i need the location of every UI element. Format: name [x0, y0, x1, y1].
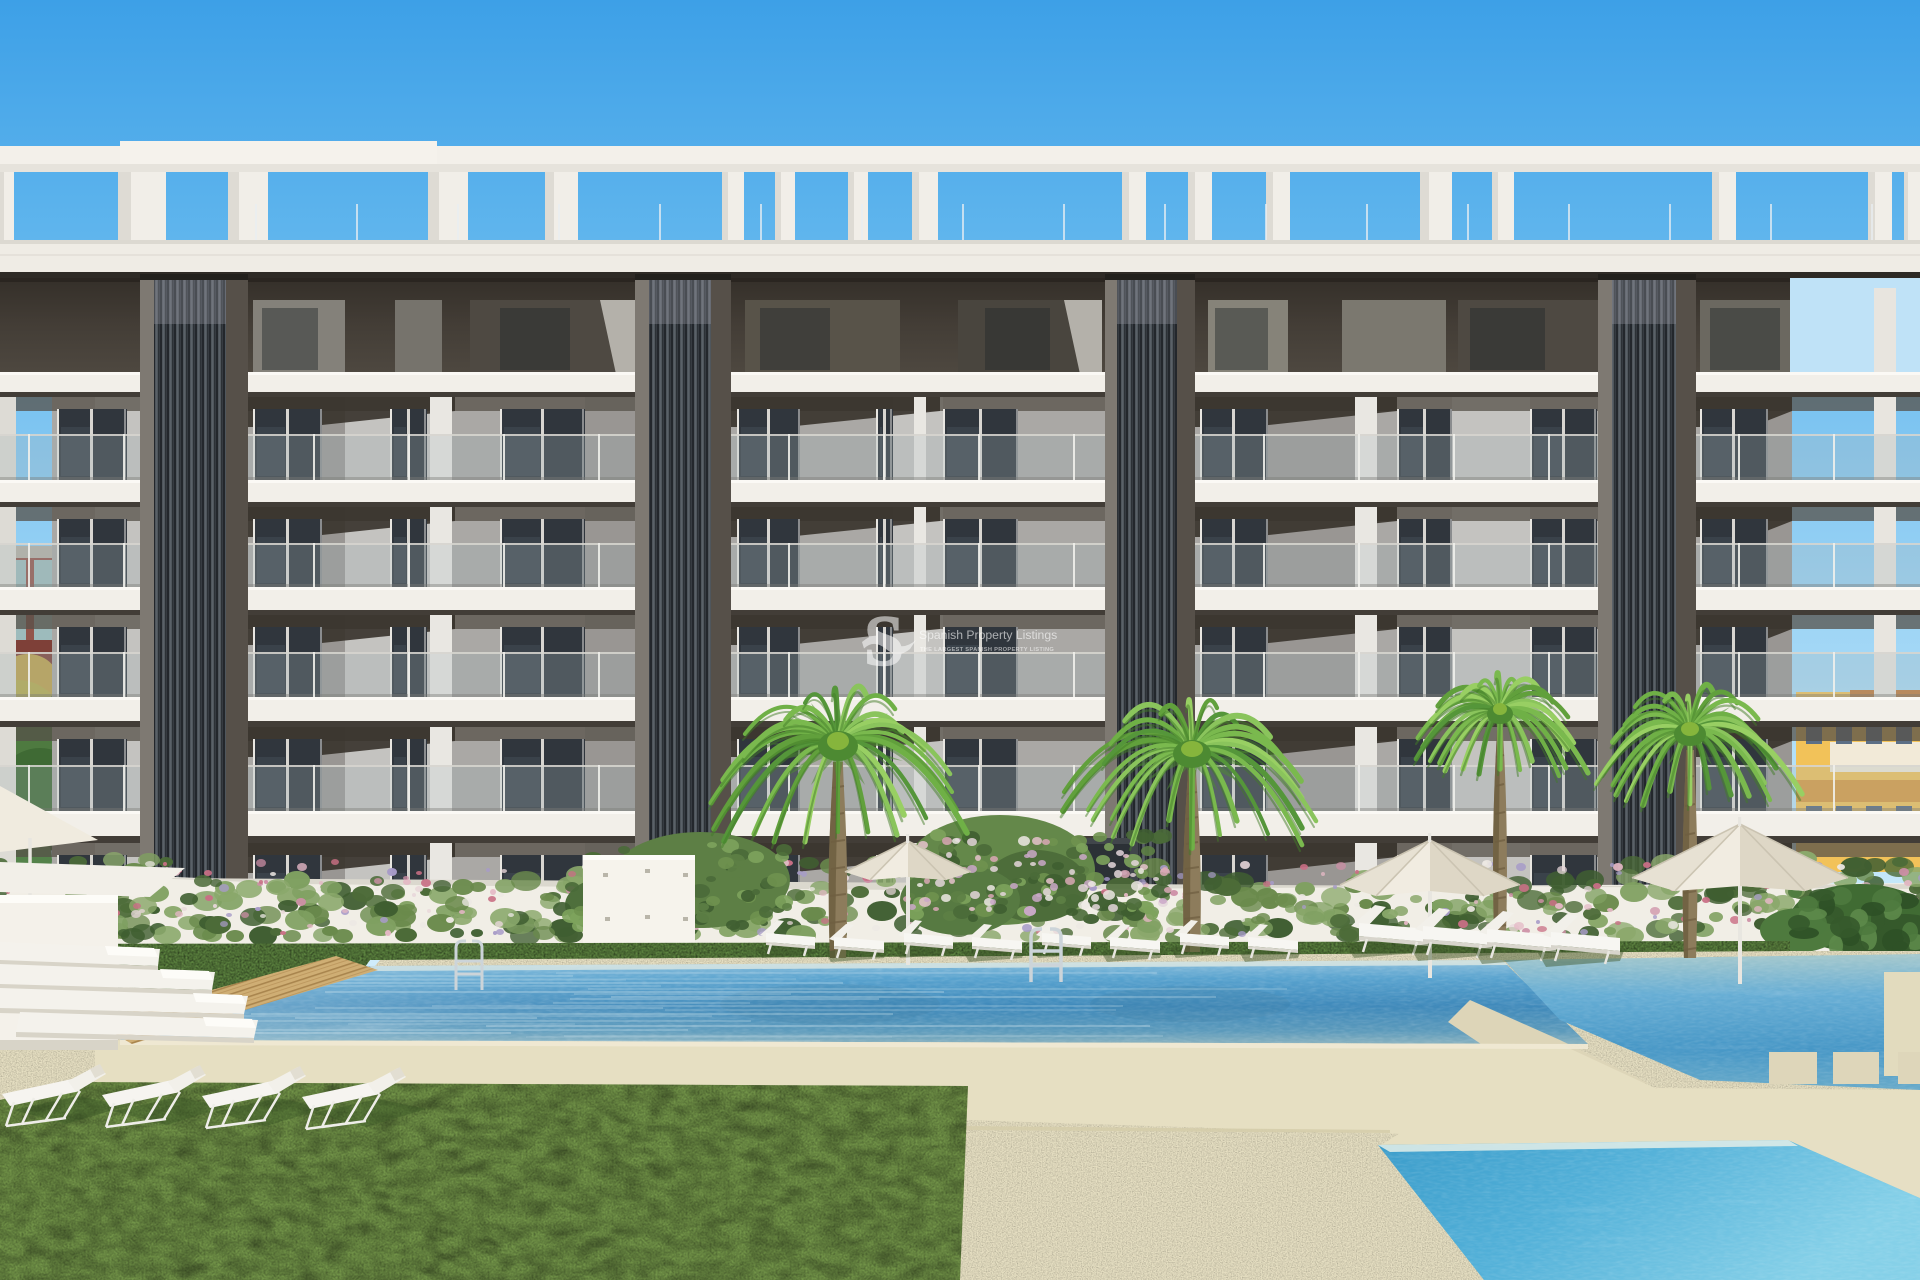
svg-text:THE LARGEST SPANISH PROPERTY L: THE LARGEST SPANISH PROPERTY LISTING: [920, 647, 1054, 653]
svg-text:Spanish Property Listings: Spanish Property Listings: [919, 628, 1057, 642]
